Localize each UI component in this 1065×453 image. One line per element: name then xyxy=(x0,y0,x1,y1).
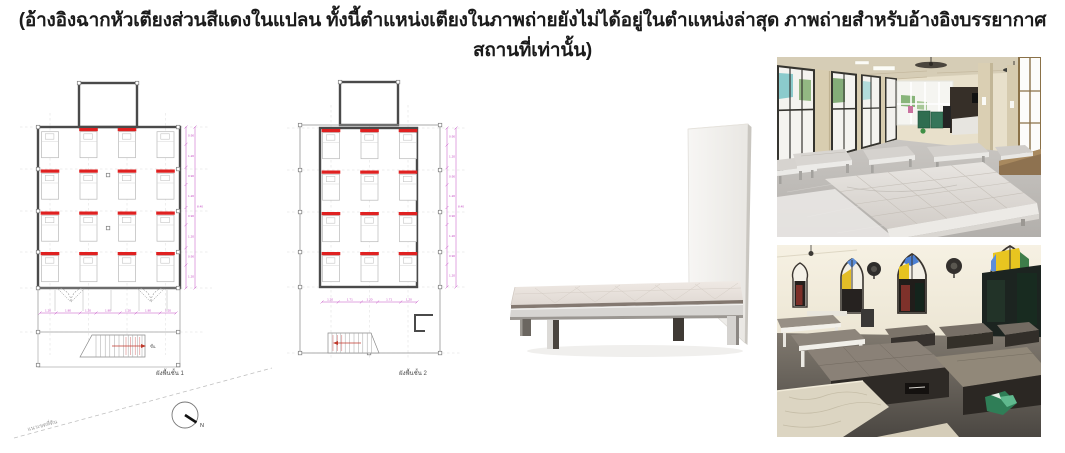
speaker xyxy=(943,106,951,128)
red-headboard xyxy=(399,212,418,215)
red-headboard xyxy=(41,252,60,255)
stair-up-label: ขึ้น xyxy=(150,342,156,349)
red-headboard xyxy=(118,128,137,131)
bed-symbol xyxy=(156,252,175,282)
light-fixture xyxy=(855,61,869,65)
red-headboard xyxy=(118,212,137,215)
red-headboard xyxy=(322,252,341,255)
north-label: N xyxy=(200,423,204,429)
red-headboard xyxy=(156,170,175,173)
bed-symbol xyxy=(41,212,60,242)
bed-3d-render xyxy=(495,105,770,360)
svg-text:0.90: 0.90 xyxy=(188,134,194,138)
red-headboard xyxy=(79,212,98,215)
svg-text:1.20: 1.20 xyxy=(85,309,91,313)
bed-symbol xyxy=(322,171,341,201)
svg-text:0.90: 0.90 xyxy=(449,135,455,139)
svg-text:1.71: 1.71 xyxy=(386,298,392,302)
svg-text:0.90: 0.90 xyxy=(449,214,455,218)
svg-text:0.90: 0.90 xyxy=(449,174,455,178)
bed-symbol xyxy=(399,171,418,201)
paper-tag xyxy=(982,97,986,105)
bed-symbol xyxy=(42,132,59,158)
red-headboard xyxy=(360,252,379,255)
red-headboard xyxy=(322,212,341,215)
red-headboard xyxy=(399,129,418,132)
svg-text:1.20: 1.20 xyxy=(327,298,333,302)
bed-symbol xyxy=(322,212,341,242)
svg-text:1.20: 1.20 xyxy=(449,274,455,278)
photo-hall-daylight xyxy=(777,57,1041,237)
svg-text:1.20: 1.20 xyxy=(188,234,194,238)
svg-text:1.80: 1.80 xyxy=(105,309,111,313)
site-marks: แนวเขตที่ดิน N xyxy=(0,355,300,453)
red-headboard xyxy=(41,212,60,215)
svg-text:1.20: 1.20 xyxy=(449,154,455,158)
floor-plan-2: 1.201.711.201.711.20 0.901.200.901.200.9… xyxy=(275,55,475,385)
bed-symbols-floor1 xyxy=(41,128,175,282)
svg-text:1.20: 1.20 xyxy=(188,275,194,279)
svg-text:1.20: 1.20 xyxy=(406,298,412,302)
slide: (อ้างอิงฉากหัวเตียงส่วนสีแดงในแปลน ทั้งน… xyxy=(0,0,1065,453)
red-headboard xyxy=(360,212,379,215)
red-headboard xyxy=(322,171,341,174)
bed-symbol xyxy=(322,252,341,282)
svg-text:1.20: 1.20 xyxy=(188,154,194,158)
red-headboard xyxy=(118,252,137,255)
vestibule-wall xyxy=(79,83,137,127)
bed-symbol xyxy=(156,212,175,242)
dimensions-side-floor1: 0.901.200.901.200.901.200.901.208.40 xyxy=(185,126,204,290)
green-ball xyxy=(920,128,925,133)
svg-text:1.71: 1.71 xyxy=(347,298,353,302)
svg-text:1.20: 1.20 xyxy=(449,234,455,238)
svg-text:1.20: 1.20 xyxy=(449,194,455,198)
green-cabinet xyxy=(918,111,930,128)
arched-window xyxy=(898,254,926,313)
red-headboard xyxy=(79,252,98,255)
floor-plan-1: ขึ้น 1.201.801.201.801.201.801.20 0.901.… xyxy=(0,55,250,400)
bed-symbol xyxy=(79,252,98,282)
bed-symbol xyxy=(79,170,98,200)
arched-window xyxy=(841,258,863,313)
red-headboard xyxy=(156,212,175,215)
bed-symbol xyxy=(118,128,137,158)
photo-hall-arched-windows xyxy=(777,245,1041,437)
red-headboard xyxy=(79,128,98,131)
pink-poster xyxy=(908,106,913,113)
floor-shadow xyxy=(527,345,743,357)
red-headboard xyxy=(399,171,418,174)
svg-text:1.20: 1.20 xyxy=(188,194,194,198)
bed-symbol xyxy=(399,252,418,282)
svg-text:1.20: 1.20 xyxy=(45,309,51,313)
dimensions-side-floor2: 0.901.200.901.200.901.200.901.208.40 xyxy=(446,127,465,289)
red-headboard xyxy=(360,129,379,132)
red-headboard xyxy=(322,129,341,132)
corner-room xyxy=(415,315,433,331)
red-headboard xyxy=(41,170,60,173)
bed-leg xyxy=(673,318,684,341)
svg-text:8.40: 8.40 xyxy=(197,205,203,209)
bed-symbol xyxy=(41,252,60,282)
brand-label xyxy=(905,383,929,394)
bed-symbol xyxy=(41,170,60,200)
red-headboard xyxy=(79,170,98,173)
stair: ขึ้น xyxy=(80,335,156,357)
dimensions-bottom-floor1: 1.201.801.201.801.201.801.20 xyxy=(39,309,178,315)
red-headboard xyxy=(156,252,175,255)
bed-symbol xyxy=(156,170,175,200)
bed-symbol xyxy=(322,129,341,159)
boundary-line xyxy=(14,368,272,438)
bed-symbol xyxy=(399,212,418,242)
bed-symbol xyxy=(118,252,137,282)
bed-symbol xyxy=(360,171,379,201)
dimensions-bottom-floor2: 1.201.711.201.711.20 xyxy=(321,298,419,304)
light-fixture xyxy=(873,66,895,71)
svg-text:1.20: 1.20 xyxy=(125,309,131,313)
dark-chair xyxy=(861,309,874,327)
vestibule-wall xyxy=(340,82,398,125)
svg-text:1.20: 1.20 xyxy=(366,298,372,302)
paper-tag xyxy=(1010,101,1014,108)
red-headboard xyxy=(360,171,379,174)
bed-symbol xyxy=(157,132,174,158)
bed-symbol xyxy=(399,129,418,159)
bed-symbol xyxy=(118,170,137,200)
svg-text:1.80: 1.80 xyxy=(65,309,71,313)
bed-symbol xyxy=(360,252,379,282)
svg-text:0.90: 0.90 xyxy=(188,174,194,178)
svg-text:1.80: 1.80 xyxy=(145,309,151,313)
bed-frame-and-mattress xyxy=(510,281,743,349)
red-headboard xyxy=(118,170,137,173)
bed-symbol xyxy=(360,129,379,159)
red-headboard xyxy=(399,252,418,255)
bed-symbol xyxy=(79,212,98,242)
svg-text:1.20: 1.20 xyxy=(165,309,171,313)
north-compass-icon: N xyxy=(172,402,204,429)
svg-text:8.40: 8.40 xyxy=(458,205,464,209)
green-cabinet xyxy=(931,112,943,128)
svg-text:0.90: 0.90 xyxy=(449,254,455,258)
bed-symbol xyxy=(360,212,379,242)
svg-text:0.90: 0.90 xyxy=(188,254,194,258)
svg-text:0.90: 0.90 xyxy=(188,214,194,218)
bed-symbol xyxy=(118,212,137,242)
stair xyxy=(328,333,379,353)
arched-window xyxy=(793,263,808,307)
bed-symbol xyxy=(79,128,98,158)
floor-plan-2-label: ผังพื้นชั้น 2 xyxy=(378,368,448,378)
